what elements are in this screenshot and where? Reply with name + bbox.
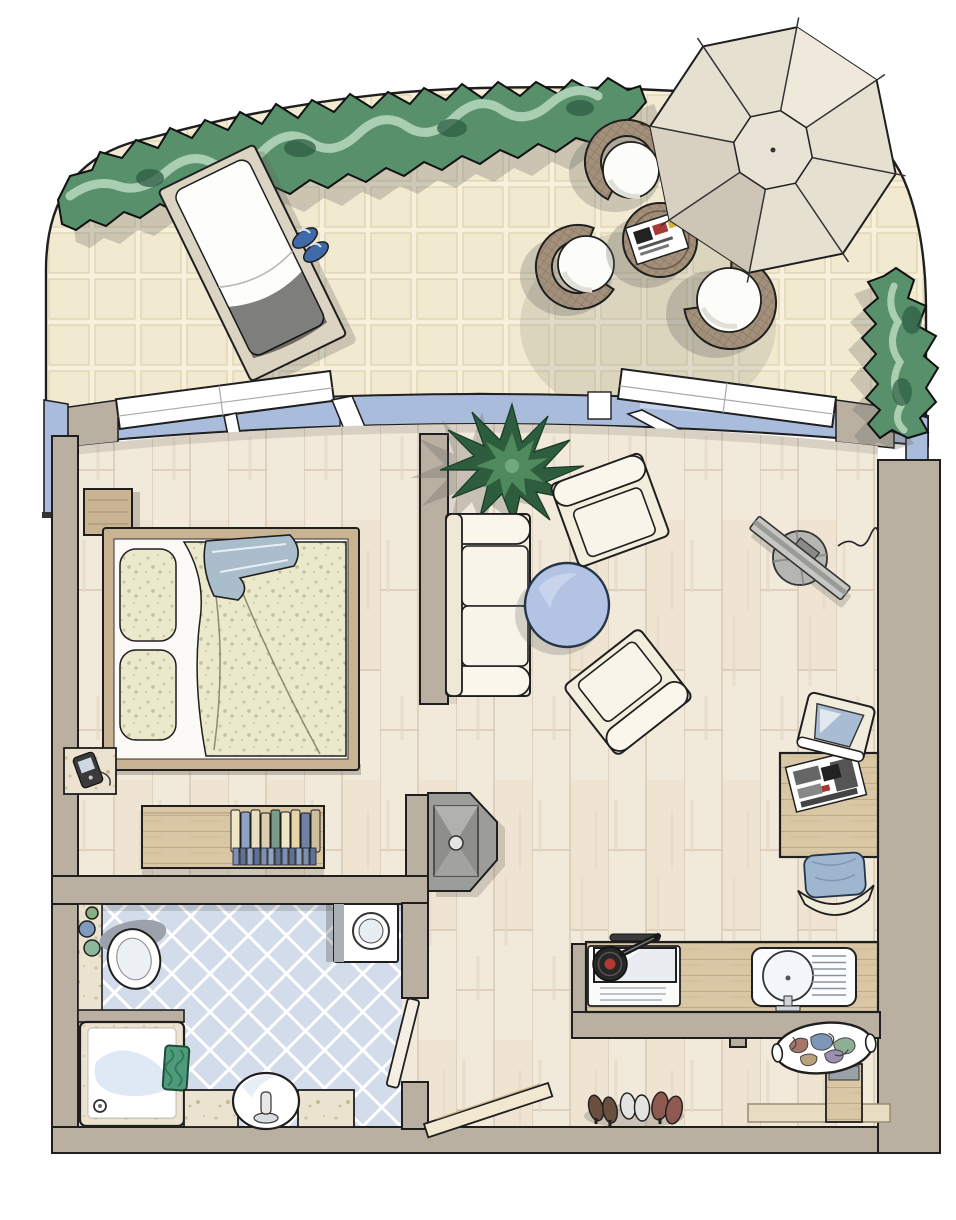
sideboard xyxy=(142,806,324,875)
wall-hall-stub xyxy=(730,1038,746,1047)
basin-counter xyxy=(184,1090,238,1127)
pillow xyxy=(120,650,176,740)
basin-faucet xyxy=(261,1092,271,1114)
wall-bathroom-right-upper xyxy=(402,903,428,998)
bath-counter-left xyxy=(78,904,102,1014)
desk xyxy=(780,750,878,857)
wall-bedroom-bathroom xyxy=(52,876,428,904)
cabinet-knob xyxy=(449,836,463,850)
books-tall xyxy=(231,810,320,852)
mullion xyxy=(588,392,611,419)
floor-plan-page xyxy=(0,0,956,1220)
floor-plan-illustration xyxy=(0,0,956,1220)
apartment xyxy=(52,404,940,1153)
doormat xyxy=(748,1104,890,1122)
pillow xyxy=(120,549,176,641)
towel xyxy=(162,1045,189,1091)
drainboard xyxy=(812,956,846,995)
washing-machine xyxy=(326,904,398,962)
sofa-back xyxy=(446,514,462,696)
chair-seat xyxy=(804,852,867,898)
double-bed xyxy=(103,528,361,775)
wall-bathroom-right-lower xyxy=(402,1082,428,1129)
wall-bottom xyxy=(52,1127,940,1153)
wall-kitchen-end xyxy=(572,944,586,1014)
nightstand xyxy=(64,748,116,794)
kitchenette xyxy=(586,934,878,1012)
shower-partition xyxy=(78,1010,184,1022)
sofa-cushion xyxy=(462,546,528,606)
wall-right xyxy=(878,460,940,1153)
basin-counter xyxy=(298,1090,354,1127)
kitchen-sink xyxy=(752,948,856,1011)
